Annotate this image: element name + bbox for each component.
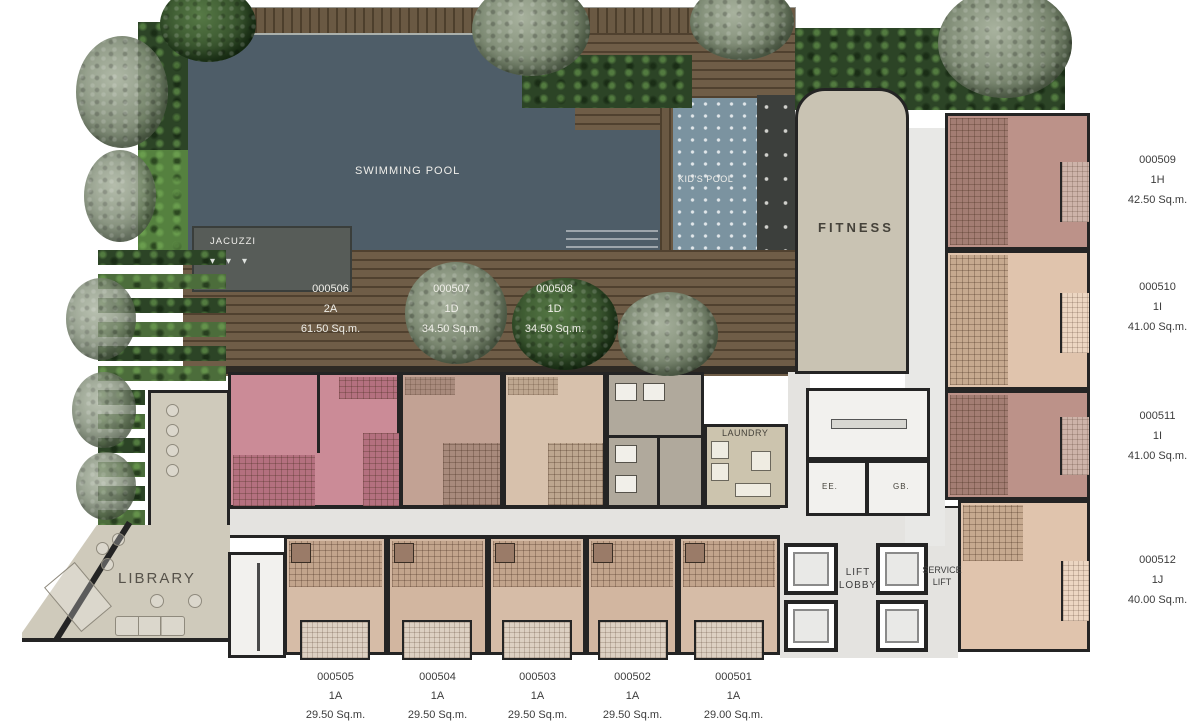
dark-paving-strip [757, 95, 795, 260]
unit-label-000507: 0005071D34.50 Sq.m. [394, 279, 509, 339]
fitness-label: FITNESS [818, 220, 894, 235]
unit-label-000510: 0005101I41.00 Sq.m. [1105, 277, 1200, 337]
unit-000512-1J [958, 500, 1090, 652]
jacuzzi-jets: ▾▾▾ [210, 256, 258, 267]
toilet-stall [615, 445, 637, 463]
balcony [300, 620, 370, 660]
ee-label: EE. [822, 482, 838, 491]
tree [72, 372, 136, 448]
unit-000508-1D [503, 372, 606, 508]
library-chair [166, 424, 179, 437]
laundry-label: LAUNDRY [722, 428, 768, 438]
toilet-stall [643, 383, 665, 401]
library-chair [166, 464, 179, 477]
tree [66, 278, 136, 360]
washer [751, 451, 771, 471]
balcony [402, 620, 472, 660]
tree [618, 292, 718, 376]
toilet-stall [615, 383, 637, 401]
bench [735, 483, 771, 497]
jacuzzi-label: JACUZZI [210, 236, 256, 247]
balcony-hatch [1060, 162, 1089, 222]
bathroom-hatch [963, 505, 1023, 561]
unit-label-000509: 0005091H42.50 Sq.m. [1105, 150, 1200, 210]
unit-label-000503: 0005031A29.50 Sq.m. [485, 668, 590, 725]
kids-pool-side-strip [660, 98, 673, 258]
bathroom-hatch [950, 118, 1008, 245]
bathroom-hatch [950, 255, 1008, 385]
swimming-pool-label: SWIMMING POOL [355, 165, 460, 177]
interior-wall [609, 435, 701, 438]
unit-label-000505: 0005051A29.50 Sq.m. [283, 668, 388, 725]
washer [711, 463, 729, 481]
stair-landing [831, 419, 907, 429]
service-lift-label: SERVICE LIFT [916, 564, 968, 588]
library-chair [188, 594, 202, 608]
lift-car [784, 600, 838, 652]
stair-rail [257, 563, 260, 651]
unit-000510-1I [945, 250, 1090, 390]
bathroom-hatch [548, 443, 603, 505]
interior-wall [317, 375, 320, 453]
library-chair [96, 542, 109, 555]
balcony [502, 620, 572, 660]
bathroom-hatch [443, 443, 500, 505]
main-stair-core [806, 388, 930, 460]
balcony [598, 620, 668, 660]
library-chair [166, 444, 179, 457]
library-chair [166, 404, 179, 417]
balcony [694, 620, 764, 660]
public-toilets [606, 372, 704, 508]
unit-000509-1H [945, 113, 1090, 250]
unit-label-000502: 0005021A29.50 Sq.m. [580, 668, 685, 725]
lift-lobby-label: LIFT LOBBY [836, 566, 880, 592]
unit-000511-1I [945, 390, 1090, 500]
unit-000507-1D [400, 372, 503, 508]
unit-label-000511: 0005111I41.00 Sq.m. [1105, 406, 1200, 466]
library-chair [150, 594, 164, 608]
hedge-strip [98, 250, 226, 265]
bathroom-hatch [950, 395, 1008, 495]
shower [495, 543, 515, 563]
interior-wall [657, 435, 660, 505]
floor-plan: JACUZZI ▾▾▾ SWIMMING POOL KID'S POOL 000… [0, 0, 1200, 727]
tree [76, 452, 136, 520]
kids-pool-label: KID'S POOL [678, 174, 733, 184]
kitchen-hatch [508, 377, 558, 395]
lift-car [784, 543, 838, 595]
unit-000506-2A [228, 372, 400, 508]
shower [685, 543, 705, 563]
shower [593, 543, 613, 563]
unit-label-000501: 0005011A29.00 Sq.m. [681, 668, 786, 725]
bathroom-hatch [233, 455, 315, 506]
shower [291, 543, 311, 563]
library-sofa [115, 616, 185, 636]
unit-label-000506: 0005062A61.50 Sq.m. [273, 279, 388, 339]
kitchen-hatch [405, 377, 455, 395]
unit-label-000508: 0005081D34.50 Sq.m. [497, 279, 612, 339]
balcony-hatch [1061, 561, 1089, 621]
library-chair [101, 558, 114, 571]
washer [711, 441, 729, 459]
unit-label-000504: 0005041A29.50 Sq.m. [385, 668, 490, 725]
kitchen-hatch [339, 377, 397, 399]
balcony-hatch [1060, 417, 1089, 475]
shower [394, 543, 414, 563]
unit-label-000512: 0005121J40.00 Sq.m. [1105, 550, 1200, 610]
balcony-hatch [1060, 293, 1089, 353]
library-label: LIBRARY [118, 570, 196, 587]
lift-car [876, 600, 928, 652]
library-chair [112, 533, 125, 546]
toilet-stall [615, 475, 637, 493]
gb-label: GB. [893, 482, 910, 491]
west-stair [228, 552, 286, 658]
tree [84, 150, 156, 242]
bathroom-hatch [363, 433, 399, 506]
tree [76, 36, 168, 148]
